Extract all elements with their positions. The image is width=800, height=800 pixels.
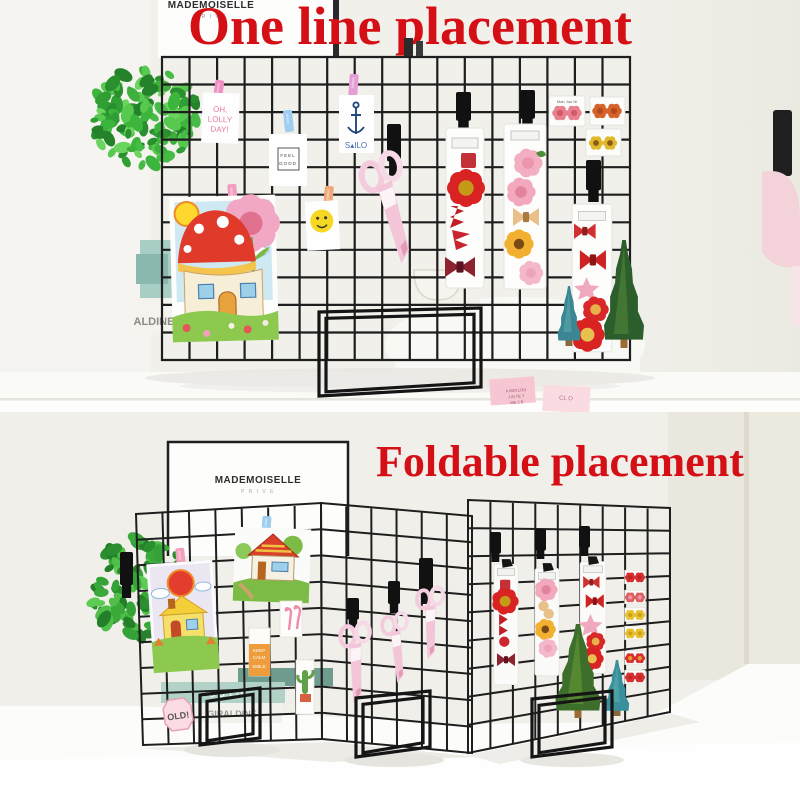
- svg-text:CALM: CALM: [253, 655, 266, 660]
- svg-text:DAY!: DAY!: [210, 125, 228, 135]
- svg-text:FEEL: FEEL: [280, 153, 295, 158]
- svg-text:S▴ILO: S▴ILO: [345, 141, 367, 150]
- svg-text:SMILE: SMILE: [252, 664, 266, 669]
- svg-text:MADEMOISELLE: MADEMOISELLE: [215, 475, 302, 486]
- svg-text:GOOD: GOOD: [279, 161, 297, 166]
- svg-text:ALDINE: ALDINE: [134, 316, 175, 328]
- svg-text:ME 2 B: ME 2 B: [510, 399, 524, 405]
- svg-text:CL O: CL O: [559, 396, 573, 403]
- svg-text:P R I V E: P R I V E: [241, 489, 275, 495]
- svg-text:OH,: OH,: [213, 105, 228, 114]
- svg-text:Foldable placement: Foldable placement: [376, 437, 744, 486]
- svg-text:KEEP: KEEP: [253, 648, 265, 653]
- svg-text:LOLLY: LOLLY: [208, 115, 233, 125]
- svg-text:Man Jou Ni: Man Jou Ni: [557, 99, 577, 104]
